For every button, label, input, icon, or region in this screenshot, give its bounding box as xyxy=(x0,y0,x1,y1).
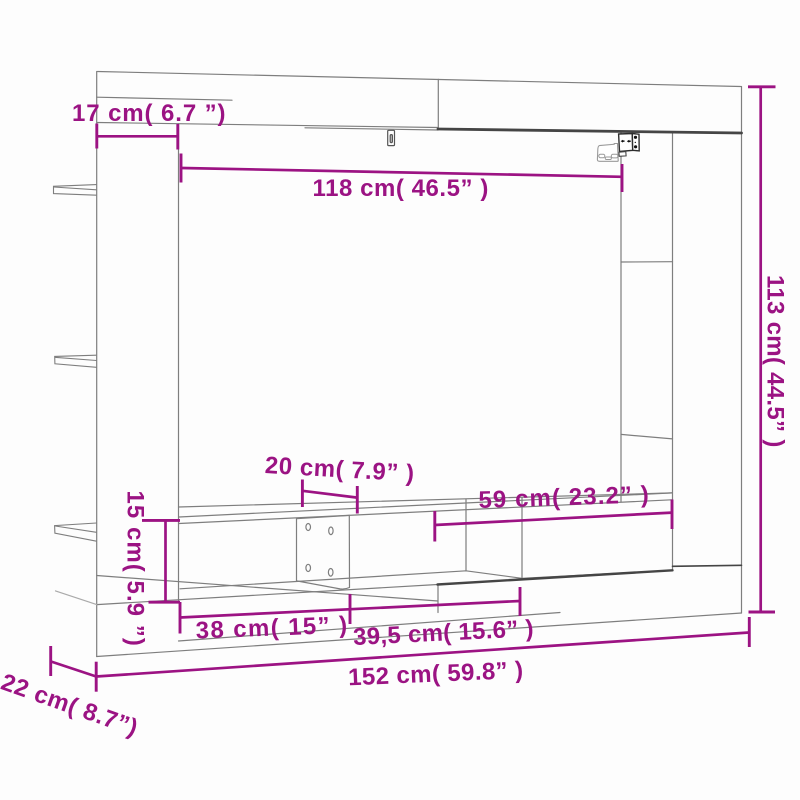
svg-text:17 cm( 6.7 ”): 17 cm( 6.7 ”) xyxy=(72,100,226,127)
svg-text:59 cm( 23.2” ): 59 cm( 23.2” ) xyxy=(478,481,650,514)
svg-text:15 cm( 5.9 ”): 15 cm( 5.9 ”) xyxy=(122,491,149,647)
svg-text:118 cm( 46.5” ): 118 cm( 46.5” ) xyxy=(313,175,489,202)
svg-text:113 cm( 44.5” ): 113 cm( 44.5” ) xyxy=(762,275,789,448)
